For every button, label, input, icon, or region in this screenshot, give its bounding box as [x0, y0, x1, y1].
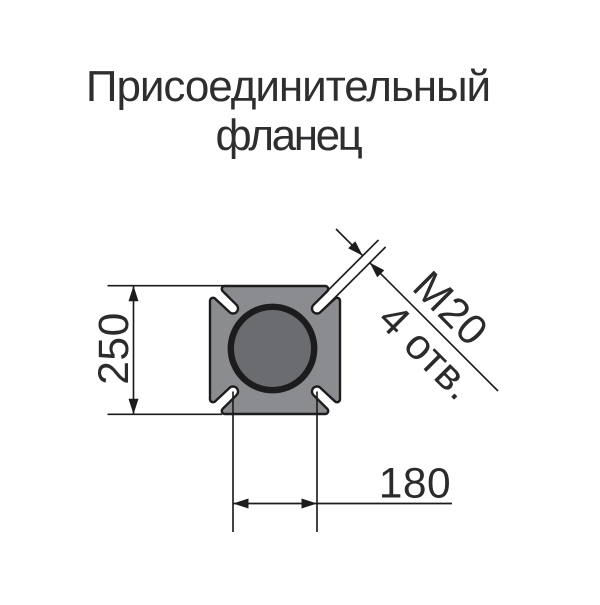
svg-text:250: 250	[91, 312, 138, 384]
svg-text:180: 180	[379, 461, 451, 508]
